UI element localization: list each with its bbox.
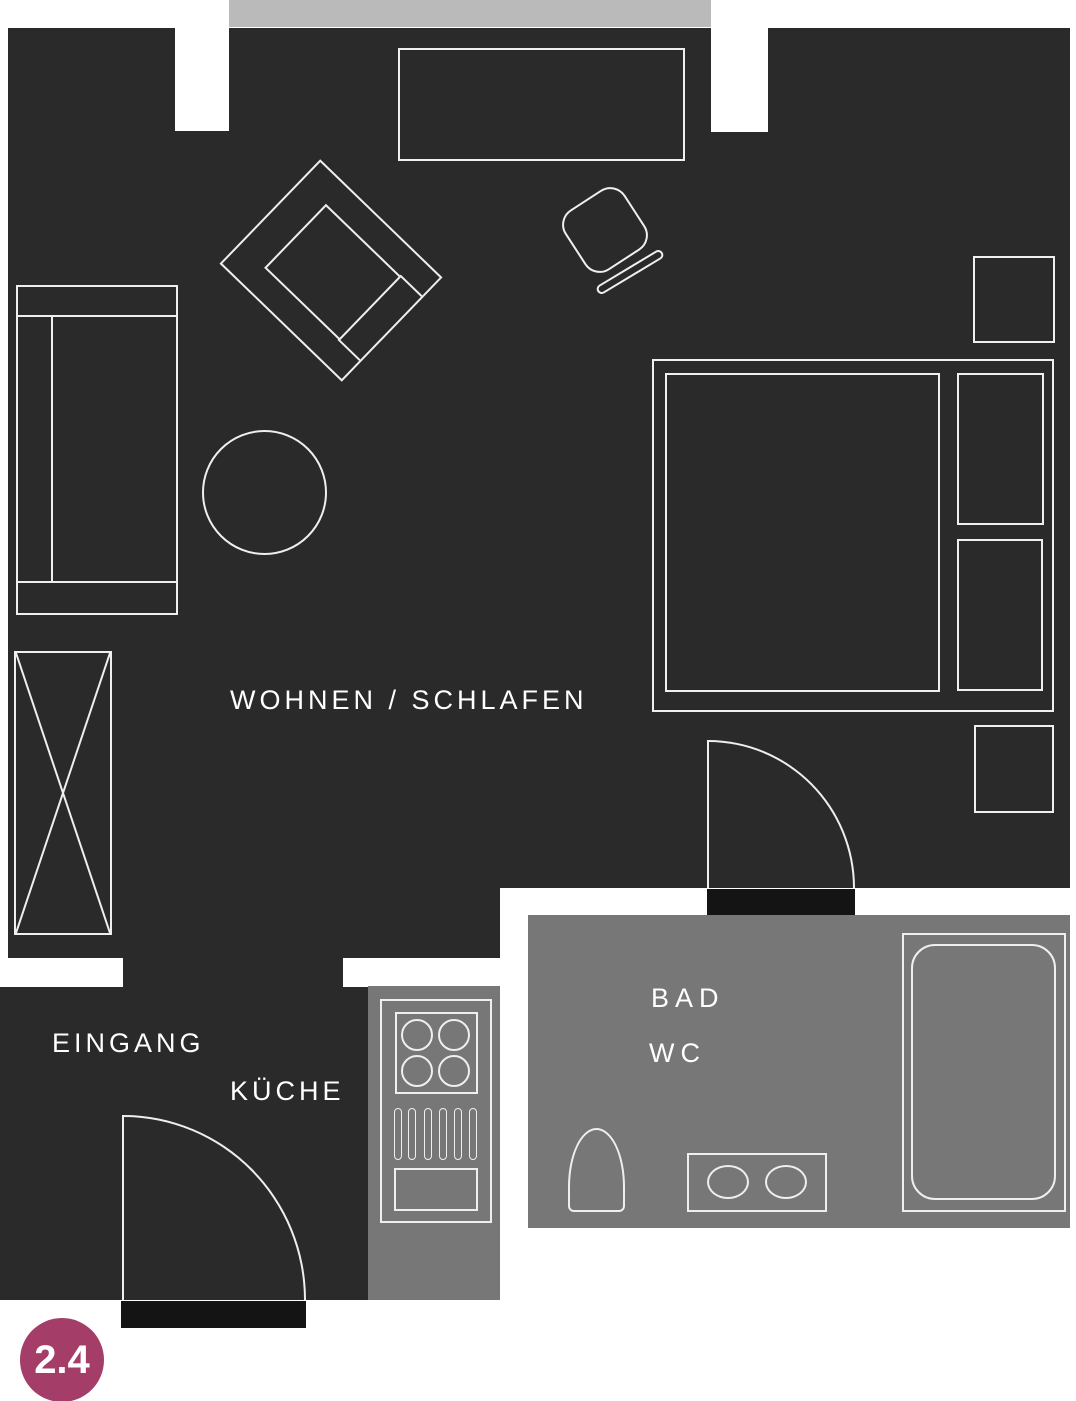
- bed-pillow-bottom: [957, 539, 1043, 691]
- bath-label: BAD: [651, 985, 725, 1012]
- wardrobe-icon: [14, 651, 112, 935]
- unit-number-label: 2.4: [34, 1338, 90, 1383]
- kitchen-drawer-icon: [394, 1168, 478, 1211]
- bed-pillow-top: [957, 373, 1044, 525]
- passage-area: [123, 958, 343, 988]
- bathtub-inner: [911, 944, 1056, 1200]
- burner-bottom-right: [438, 1055, 470, 1087]
- vent-slot-4: [439, 1108, 447, 1160]
- armchair-armrest-line-top: [399, 275, 422, 297]
- sideboard-icon: [398, 48, 685, 161]
- basin-left-icon: [707, 1165, 749, 1199]
- wall-notch-right: [711, 28, 768, 132]
- entrance-label: EINGANG: [52, 1030, 205, 1057]
- vent-slot-5: [454, 1108, 462, 1160]
- nightstand-bottom-icon: [974, 725, 1054, 813]
- kitchen-label: KÜCHE: [230, 1078, 345, 1105]
- armchair-seat: [264, 204, 401, 341]
- burner-top-right: [438, 1019, 470, 1051]
- balcony-strip: [229, 0, 711, 27]
- wc-label: WC: [649, 1040, 706, 1067]
- entrance-door-threshold: [121, 1301, 306, 1328]
- vent-slot-2: [408, 1108, 416, 1160]
- nightstand-top-icon: [973, 256, 1055, 343]
- wardrobe-cross-icon: [16, 653, 110, 933]
- round-table-icon: [202, 430, 327, 555]
- vent-slot-1: [394, 1108, 402, 1160]
- bed-mattress: [665, 373, 940, 692]
- vent-slot-6: [469, 1108, 477, 1160]
- sofa-icon: [16, 285, 178, 615]
- vent-slot-3: [424, 1108, 432, 1160]
- sofa-front-line: [18, 581, 176, 583]
- armchair-armrest-line-bottom: [338, 339, 361, 361]
- floor-plan-canvas: WOHNEN / SCHLAFEN EINGANG KÜCHE BAD WC 2…: [0, 0, 1076, 1401]
- living-room-label: WOHNEN / SCHLAFEN: [230, 687, 588, 714]
- sofa-seat-line: [51, 315, 53, 583]
- bathroom-door-threshold: [707, 889, 855, 915]
- basin-right-icon: [765, 1165, 807, 1199]
- burner-bottom-left: [401, 1055, 433, 1087]
- burner-top-left: [401, 1019, 433, 1051]
- unit-number-badge: 2.4: [20, 1318, 104, 1401]
- sofa-back-line: [18, 315, 176, 317]
- wall-notch-left: [175, 28, 229, 131]
